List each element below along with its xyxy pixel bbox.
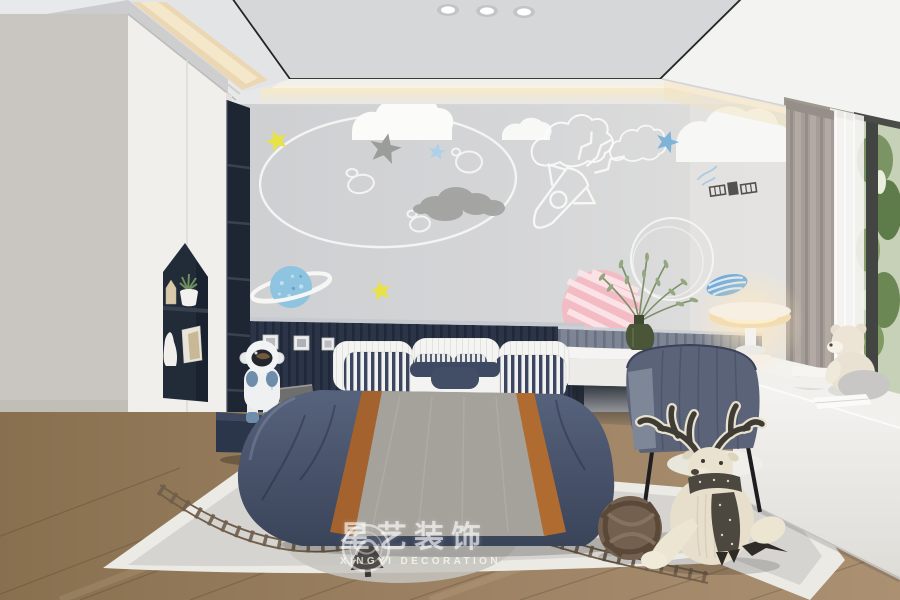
cove-light-glow (256, 88, 696, 106)
navy-open-shelf (227, 100, 250, 462)
scene-canvas (0, 0, 900, 600)
niche-books (182, 326, 202, 363)
bedroom-render: 星艺装饰 XINGYI DECORATION (0, 0, 900, 600)
duvet-gray-panel (352, 391, 546, 536)
potted-plant (180, 274, 198, 306)
lumbar-pillow (431, 367, 479, 389)
